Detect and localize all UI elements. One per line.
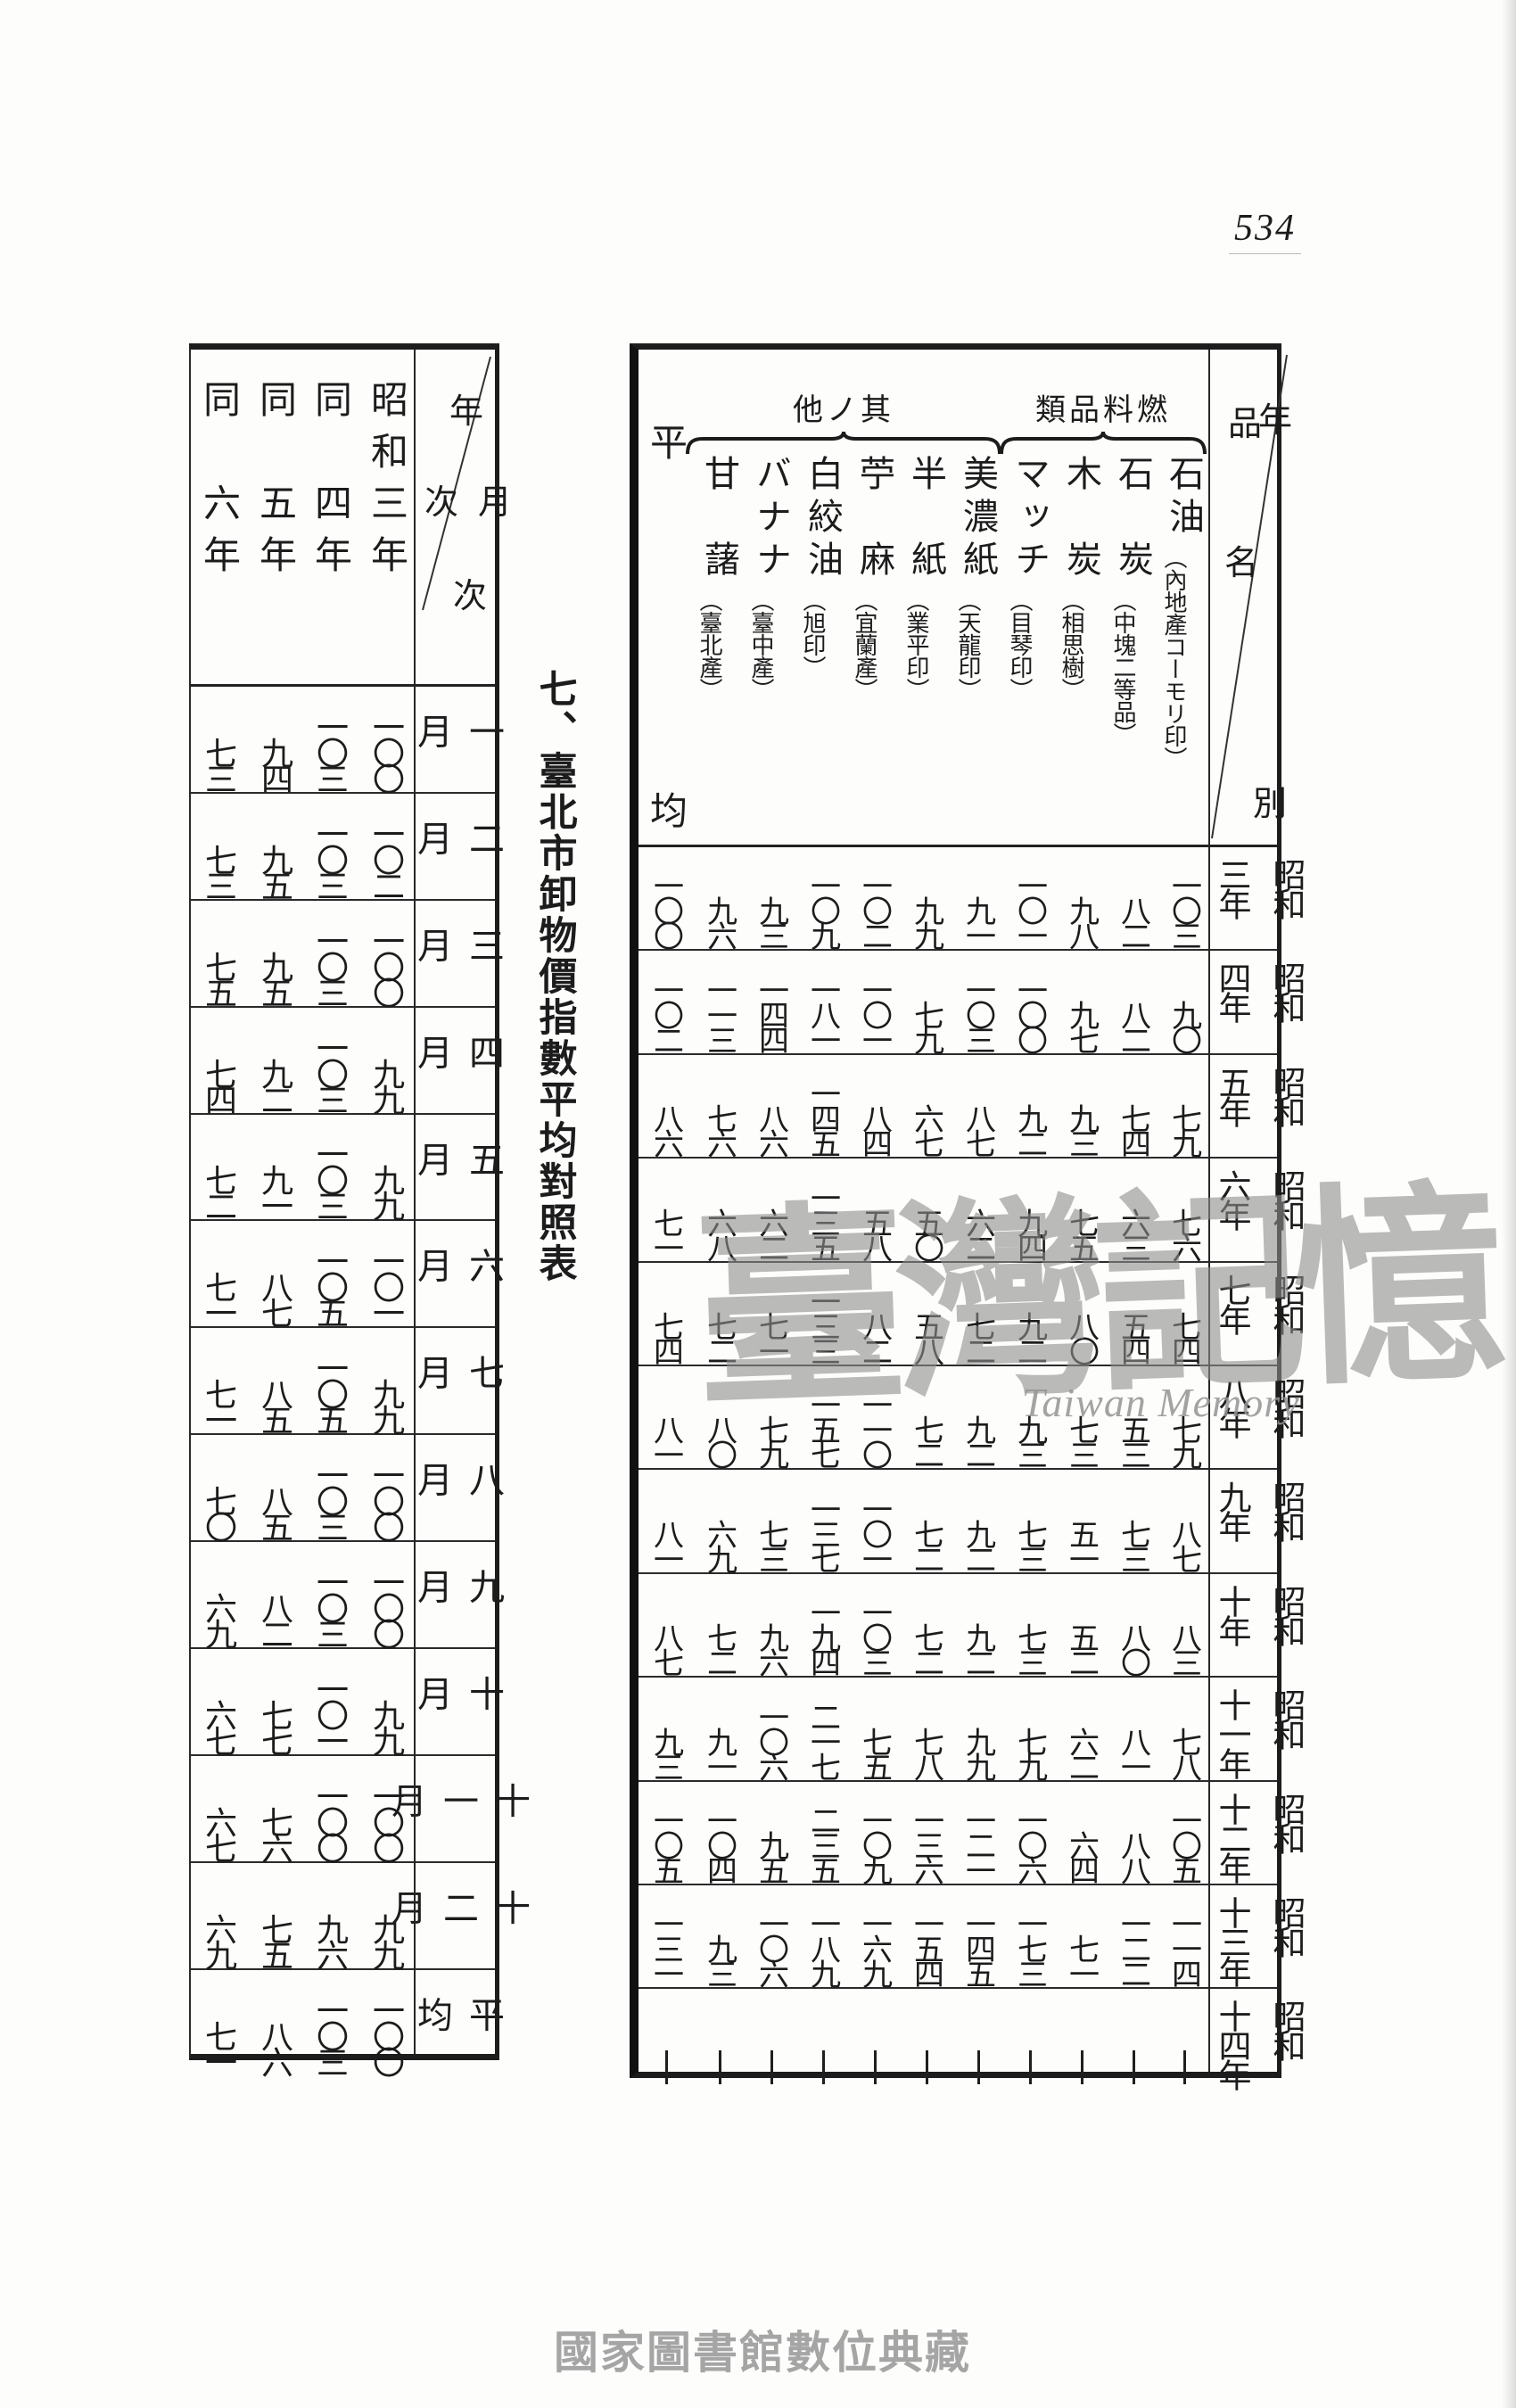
era-label: 昭和 bbox=[1261, 1896, 1309, 1984]
year-row-label: 昭和三年 bbox=[1200, 858, 1309, 917]
month-label: 一月 bbox=[406, 713, 509, 765]
ditto-mark bbox=[822, 2050, 825, 2084]
index-value: 八七 bbox=[644, 1622, 688, 1672]
commodity-brand-note: ︵中塊二等品︶ bbox=[1107, 589, 1140, 745]
table-row: 一〇〇一〇三八六七一平均 bbox=[191, 1970, 495, 2075]
index-value: 八五 bbox=[251, 1378, 298, 1430]
commodity-brand-note: ︵目琴印︶ bbox=[1003, 589, 1036, 700]
month-label: 十月 bbox=[406, 1675, 509, 1728]
index-value: 八三 bbox=[1162, 1622, 1206, 1672]
table-row: 八三八〇五二七三九二七二一〇三一九四九六七二八七昭和十年 bbox=[639, 1574, 1277, 1678]
index-value: 一〇三 bbox=[307, 1566, 353, 1644]
table-row: 一〇三八二九八一〇一九一九九一〇二一〇九九三九六一〇〇昭和三年 bbox=[639, 847, 1277, 951]
index-value: 八二 bbox=[1111, 895, 1155, 945]
commodity-column-header: 木 炭︵相思樹︶ bbox=[1055, 350, 1107, 700]
year-number-label: 三年 bbox=[1207, 858, 1255, 917]
page-number: 534 bbox=[1229, 207, 1301, 254]
table-row: 一〇〇一〇三九四七三一月 bbox=[191, 687, 495, 794]
year-number-label: 十二年 bbox=[1207, 1793, 1255, 1881]
index-value: 一〇〇 bbox=[363, 711, 409, 788]
index-value: 八七 bbox=[1162, 1519, 1206, 1569]
year-column-header: 同 五年 bbox=[248, 380, 302, 587]
index-value: 八七 bbox=[251, 1271, 298, 1323]
index-value: 七七 bbox=[251, 1699, 298, 1751]
era-label: 昭和 bbox=[1261, 1066, 1309, 1125]
ditto-mark bbox=[1183, 2050, 1186, 2084]
commodity-column-header: 甘 藷︵臺北產︶ bbox=[693, 350, 745, 700]
index-value: 一〇一 bbox=[853, 975, 896, 1050]
index-value: 七一 bbox=[195, 1271, 242, 1323]
index-value: 七九 bbox=[1008, 1727, 1051, 1777]
corner-axis-label: 品 bbox=[1228, 396, 1262, 445]
index-value: 一〇一 bbox=[363, 1245, 409, 1323]
index-value: 八一 bbox=[1111, 1727, 1155, 1777]
index-value: 一四五 bbox=[956, 1909, 1000, 1983]
index-value: 一三六 bbox=[904, 1805, 948, 1880]
index-value: 六九 bbox=[195, 1913, 242, 1965]
index-value: 一〇一 bbox=[307, 1673, 353, 1751]
index-value: 一〇一 bbox=[1008, 870, 1051, 945]
index-value: 一〇〇 bbox=[644, 870, 688, 945]
table-row: 八七七三五一七三九二七二一〇一一三七七三六九八一昭和九年 bbox=[639, 1470, 1277, 1573]
index-value: 一八九 bbox=[801, 1909, 845, 1983]
index-value: 七三 bbox=[195, 737, 242, 788]
index-value: 九九 bbox=[363, 1699, 409, 1751]
index-value: 九二 bbox=[956, 1519, 1000, 1569]
table-row: 一〇〇一〇〇七六六七十一月 bbox=[191, 1756, 495, 1863]
index-value: 一〇五 bbox=[644, 1805, 688, 1880]
index-value: 七三 bbox=[195, 844, 242, 895]
table-row: 七八八一六二七九九九七八七五二一七一〇六九一九三昭和十一年 bbox=[639, 1678, 1277, 1781]
commodity-column-header: マッチ︵目琴印︶ bbox=[1003, 350, 1055, 700]
index-value: 一〇五 bbox=[1162, 1805, 1206, 1880]
index-value: 九九 bbox=[363, 1378, 409, 1430]
index-value: 七四 bbox=[644, 1311, 688, 1361]
index-value: 一〇〇 bbox=[307, 1780, 353, 1858]
index-value: 七三 bbox=[1008, 1622, 1051, 1672]
commodity-brand-note: ︵臺中產︶ bbox=[745, 589, 778, 700]
year-row-label: 昭和十三年 bbox=[1200, 1896, 1309, 1984]
commodity-brand-note: ︵旭印︶ bbox=[796, 589, 829, 678]
table-row: 昭和十四年 bbox=[639, 1989, 1277, 2091]
index-value: 七三 bbox=[749, 1519, 793, 1569]
commodity-brand-note: ︵天龍印︶ bbox=[952, 589, 985, 700]
index-value: 九三 bbox=[697, 1934, 741, 1983]
era-label: 昭和 bbox=[1261, 1688, 1309, 1777]
index-value: 七一 bbox=[1059, 1934, 1103, 1983]
table-row: 九〇八二九七一〇〇一〇三七九一〇一一八一一四四一一三一〇二昭和四年 bbox=[639, 951, 1277, 1054]
index-value: 五一 bbox=[1059, 1519, 1103, 1569]
index-value: 一〇六 bbox=[1008, 1805, 1051, 1880]
commodity-column-header: バナナ︵臺中產︶ bbox=[745, 350, 796, 700]
year-number-label: 十三年 bbox=[1207, 1896, 1255, 1984]
right-table-corner-cell: 品 名 年 別 bbox=[1208, 350, 1290, 845]
commodity-name: 木 炭 bbox=[1055, 455, 1107, 583]
index-value: 一八一 bbox=[801, 975, 845, 1050]
corner-axis-label: 別 bbox=[1253, 776, 1287, 825]
index-value: 九二 bbox=[251, 1058, 298, 1109]
month-label: 七月 bbox=[406, 1355, 509, 1407]
index-value: 九八 bbox=[1059, 895, 1103, 945]
month-label: 十一月 bbox=[380, 1782, 535, 1835]
index-value: 八〇 bbox=[1111, 1622, 1155, 1672]
commodity-brand-note: ︵業平印︶ bbox=[900, 589, 933, 700]
table-row: 九九一〇五八五七一七月 bbox=[191, 1328, 495, 1435]
month-label: 八月 bbox=[406, 1462, 509, 1514]
index-value: 七六 bbox=[251, 1806, 298, 1858]
index-value: 一〇九 bbox=[853, 1805, 896, 1880]
index-value: 九一 bbox=[697, 1727, 741, 1777]
index-value: 一〇九 bbox=[801, 870, 845, 945]
monthly-index-table: 昭和三年同 四年同 五年同 六年 年 次 月 次 一〇〇一〇三九四七三一月一〇二… bbox=[189, 343, 499, 2060]
era-label: 昭和 bbox=[1261, 1480, 1309, 1539]
index-value: 七五 bbox=[853, 1727, 896, 1777]
year-row-label: 昭和四年 bbox=[1200, 961, 1309, 1020]
scan-edge-shadow bbox=[1502, 0, 1516, 2408]
index-value: 七四 bbox=[195, 1058, 242, 1109]
index-value: 八二 bbox=[1111, 1000, 1155, 1050]
library-footer-watermark: 國家圖書館數位典藏 bbox=[544, 2317, 981, 2381]
era-label: 昭和 bbox=[1261, 1585, 1309, 1644]
year-number-label: 五年 bbox=[1207, 1066, 1255, 1125]
index-value: 九三 bbox=[644, 1727, 688, 1777]
commodity-brand-note: ︵內地產コーモリ印︶ bbox=[1158, 546, 1191, 769]
index-value: 一〇三 bbox=[307, 1994, 353, 2072]
year-column-header: 昭和三年 bbox=[359, 380, 414, 587]
index-value: 九五 bbox=[251, 951, 298, 1002]
average-column-header: 均 bbox=[639, 791, 693, 829]
commodity-column-header: 石油︵內地產コーモリ印︶ bbox=[1158, 350, 1209, 769]
commodity-name: 石 炭 bbox=[1107, 455, 1158, 583]
index-value: 一〇五 bbox=[307, 1245, 353, 1323]
year-number-label: 九年 bbox=[1207, 1480, 1255, 1539]
index-value: 一六九 bbox=[853, 1909, 896, 1983]
index-value: 七三 bbox=[1111, 1519, 1155, 1569]
index-value: 九六 bbox=[749, 1622, 793, 1672]
index-value: 一五四 bbox=[904, 1909, 948, 1983]
index-value: 七九 bbox=[904, 1000, 948, 1050]
corner-axis-label: 年 bbox=[449, 383, 483, 433]
index-value: 八五 bbox=[251, 1485, 298, 1537]
index-value: 一一三 bbox=[697, 975, 741, 1050]
index-value: 七〇 bbox=[195, 1485, 242, 1537]
index-value: 一四四 bbox=[749, 975, 793, 1050]
index-value: 六二 bbox=[1059, 1727, 1103, 1777]
index-value: 六九 bbox=[195, 1592, 242, 1644]
month-label: 六月 bbox=[406, 1248, 509, 1300]
corner-axis-label: 次 bbox=[453, 568, 487, 617]
index-value: 九一 bbox=[251, 1164, 298, 1216]
table-row: 一〇五八八六四一〇六一二一一三六一〇九二三五九五一〇四一〇五昭和十二年 bbox=[639, 1782, 1277, 1885]
left-table-corner-cell: 年 次 月 次 bbox=[414, 350, 501, 684]
index-value: 九九 bbox=[904, 895, 948, 945]
index-value: 七一 bbox=[644, 1208, 688, 1258]
era-label: 昭和 bbox=[1261, 2000, 1309, 2088]
index-value: 一〇六 bbox=[749, 1909, 793, 1983]
average-column-header: 平 bbox=[639, 423, 693, 460]
year-number-label: 十年 bbox=[1207, 1585, 1255, 1644]
corner-axis-label: 月 bbox=[478, 474, 512, 524]
index-value: 一〇五 bbox=[307, 1352, 353, 1430]
index-value: 六七 bbox=[195, 1806, 242, 1858]
index-value: 七八 bbox=[904, 1727, 948, 1777]
commodity-column-header: 苧 麻︵宜蘭產︶ bbox=[848, 350, 900, 700]
era-label: 昭和 bbox=[1261, 1793, 1309, 1881]
index-value: 九九 bbox=[363, 1164, 409, 1216]
index-value: 一九四 bbox=[801, 1597, 845, 1672]
index-value: 一三一 bbox=[644, 1909, 688, 1983]
commodity-name: 甘 藷 bbox=[693, 455, 745, 583]
month-column-divider bbox=[414, 350, 416, 2054]
index-value: 七一 bbox=[195, 1378, 242, 1430]
index-value: 八一 bbox=[644, 1414, 688, 1464]
index-value: 一〇一 bbox=[853, 1494, 896, 1569]
era-label: 昭和 bbox=[1261, 961, 1309, 1020]
commodity-name: 半 紙 bbox=[900, 455, 952, 583]
commodity-name: マッチ bbox=[1003, 455, 1055, 583]
table-row: 九九一〇一七七六七十月 bbox=[191, 1649, 495, 1756]
index-value: 一〇二 bbox=[644, 975, 688, 1050]
index-value: 七五 bbox=[251, 1913, 298, 1965]
left-table-header: 昭和三年同 四年同 五年同 六年 年 次 月 次 bbox=[191, 350, 495, 687]
index-value: 五二 bbox=[1059, 1622, 1103, 1672]
index-value: 九二 bbox=[956, 1622, 1000, 1672]
index-value: 一〇〇 bbox=[363, 1566, 409, 1644]
ditto-mark bbox=[770, 2050, 773, 2084]
month-label: 五月 bbox=[406, 1141, 509, 1193]
month-label: 平均 bbox=[406, 1996, 509, 2049]
month-label: 四月 bbox=[406, 1034, 509, 1086]
corner-axis-label: 年 bbox=[1258, 392, 1292, 441]
index-value: 一〇〇 bbox=[363, 1459, 409, 1537]
table-row: 一一四一二二七一一七三一四五一五四一六九一八九一〇六九三一三一昭和十三年 bbox=[639, 1885, 1277, 1989]
commodity-name: 白絞油 bbox=[796, 455, 848, 583]
year-row-label: 昭和十一年 bbox=[1200, 1688, 1309, 1777]
index-value: 九一 bbox=[956, 895, 1000, 945]
year-row-label: 昭和九年 bbox=[1200, 1480, 1309, 1539]
year-column-header: 同 六年 bbox=[192, 380, 246, 587]
ditto-mark bbox=[874, 2050, 877, 2084]
commodity-column-header: 美濃紙︵天龍印︶ bbox=[952, 350, 1003, 700]
index-value: 七二 bbox=[904, 1622, 948, 1672]
year-row-label: 昭和十年 bbox=[1200, 1585, 1309, 1644]
table-row: 九九一〇三九一七二五月 bbox=[191, 1115, 495, 1222]
index-value: 二三五 bbox=[801, 1805, 845, 1880]
month-label: 二月 bbox=[406, 820, 509, 872]
index-value: 九〇 bbox=[1162, 1000, 1206, 1050]
commodity-name: 石油 bbox=[1158, 455, 1209, 540]
year-row-label: 昭和十四年 bbox=[1200, 2000, 1309, 2088]
index-value: 一二二 bbox=[1111, 1909, 1155, 1983]
index-value: 一二一 bbox=[956, 1805, 1000, 1880]
index-value: 七八 bbox=[1162, 1727, 1206, 1777]
taiwan-memory-latin-watermark: Taiwan Memory bbox=[1022, 1379, 1300, 1426]
index-value: 九七 bbox=[1059, 1000, 1103, 1050]
index-value: 八一 bbox=[644, 1519, 688, 1569]
table-row: 九九一〇三九二七四四月 bbox=[191, 1008, 495, 1115]
index-value: 六四 bbox=[1059, 1830, 1103, 1880]
index-value: 九五 bbox=[251, 844, 298, 895]
index-value: 一〇三 bbox=[956, 975, 1000, 1050]
table-row: 一〇〇一〇三九五七五三月 bbox=[191, 901, 495, 1008]
year-row-label: 昭和五年 bbox=[1200, 1066, 1309, 1125]
table-row: 一〇〇一〇三八二六九九月 bbox=[191, 1542, 495, 1649]
corner-axis-label: 名 bbox=[1224, 535, 1258, 584]
index-value: 一〇三 bbox=[307, 1032, 353, 1109]
index-value: 七三 bbox=[1008, 1519, 1051, 1569]
index-value: 一三七 bbox=[801, 1494, 845, 1569]
page-title: 七、臺北市卸物價指數平均對照表 bbox=[526, 669, 581, 1284]
index-value: 七五 bbox=[195, 951, 242, 1002]
index-value: 八六 bbox=[644, 1103, 688, 1153]
commodity-brand-note: ︵相思樹︶ bbox=[1055, 589, 1088, 700]
index-value: 八六 bbox=[251, 2020, 298, 2072]
ditto-mark bbox=[665, 2050, 668, 2084]
commodity-column-header: 半 紙︵業平印︶ bbox=[900, 350, 952, 700]
index-value: 七二 bbox=[697, 1622, 741, 1672]
ditto-mark bbox=[1081, 2050, 1083, 2084]
ditto-mark bbox=[1133, 2050, 1135, 2084]
index-value: 一〇二 bbox=[853, 870, 896, 945]
index-value: 一〇四 bbox=[697, 1805, 741, 1880]
ditto-mark bbox=[719, 2050, 721, 2084]
right-table-header: 類品料燃 他ノ其 石油︵內地產コーモリ印︶石 炭︵中塊二等品︶木 炭︵相思樹︶マ… bbox=[639, 350, 1277, 847]
year-number-label: 十一年 bbox=[1207, 1688, 1255, 1777]
table-row: 九九九六七五六九十二月 bbox=[191, 1863, 495, 1970]
commodity-column-header: 石 炭︵中塊二等品︶ bbox=[1107, 350, 1158, 745]
year-column-header: 同 四年 bbox=[303, 380, 358, 587]
index-value: 九三 bbox=[749, 895, 793, 945]
index-value: 七二 bbox=[195, 1164, 242, 1216]
index-value: 一〇二 bbox=[363, 818, 409, 895]
index-value: 一七三 bbox=[1008, 1909, 1051, 1983]
table-row: 一〇二一〇三九五七三二月 bbox=[191, 794, 495, 901]
index-value: 一〇〇 bbox=[363, 925, 409, 1002]
index-value: 七一 bbox=[195, 2020, 242, 2072]
commodity-name: 苧 麻 bbox=[848, 455, 900, 583]
index-value: 一〇六 bbox=[749, 1702, 793, 1777]
era-label: 昭和 bbox=[1261, 858, 1309, 917]
month-label: 十二月 bbox=[380, 1889, 535, 1942]
index-value: 一〇三 bbox=[307, 925, 353, 1002]
index-value: 九九 bbox=[363, 1058, 409, 1109]
index-value: 一〇三 bbox=[307, 818, 353, 895]
index-value: 二一七 bbox=[801, 1702, 845, 1777]
year-number-label: 四年 bbox=[1207, 961, 1255, 1020]
commodity-brand-note: ︵宜蘭產︶ bbox=[848, 589, 881, 700]
table-row: 一〇一一〇五八七七一六月 bbox=[191, 1221, 495, 1328]
index-value: 一〇〇 bbox=[363, 1994, 409, 2072]
index-value: 一〇三 bbox=[1162, 870, 1206, 945]
month-label: 三月 bbox=[406, 927, 509, 979]
index-value: 九五 bbox=[749, 1830, 793, 1880]
index-value: 一〇三 bbox=[853, 1597, 896, 1672]
year-row-label: 昭和十二年 bbox=[1200, 1793, 1309, 1881]
index-value: 一〇三 bbox=[307, 711, 353, 788]
index-value: 六七 bbox=[195, 1699, 242, 1751]
commodity-brand-note: ︵臺北產︶ bbox=[693, 589, 726, 700]
commodity-column-header: 白絞油︵旭印︶ bbox=[796, 350, 848, 678]
ditto-mark bbox=[1029, 2050, 1032, 2084]
corner-axis-label: 次 bbox=[424, 474, 458, 524]
index-value: 一〇〇 bbox=[1008, 975, 1051, 1050]
index-value: 九四 bbox=[251, 737, 298, 788]
index-value: 八二 bbox=[251, 1592, 298, 1644]
index-value: 一〇三 bbox=[307, 1459, 353, 1537]
index-value: 一一四 bbox=[1162, 1909, 1206, 1983]
index-value: 六九 bbox=[697, 1519, 741, 1569]
month-label: 九月 bbox=[406, 1569, 509, 1621]
index-value: 九九 bbox=[956, 1727, 1000, 1777]
ditto-mark bbox=[977, 2050, 980, 2084]
table-row: 一〇〇一〇三八五七〇八月 bbox=[191, 1435, 495, 1542]
index-value: 一〇三 bbox=[307, 1138, 353, 1216]
index-value: 八八 bbox=[1111, 1830, 1155, 1880]
index-value: 九六 bbox=[307, 1913, 353, 1965]
commodity-name: 美濃紙 bbox=[952, 455, 1003, 583]
year-number-label: 十四年 bbox=[1207, 2000, 1255, 2088]
index-value: 七二 bbox=[904, 1519, 948, 1569]
commodity-name: バナナ bbox=[745, 455, 796, 583]
ditto-mark bbox=[926, 2050, 928, 2084]
index-value: 九六 bbox=[697, 895, 741, 945]
